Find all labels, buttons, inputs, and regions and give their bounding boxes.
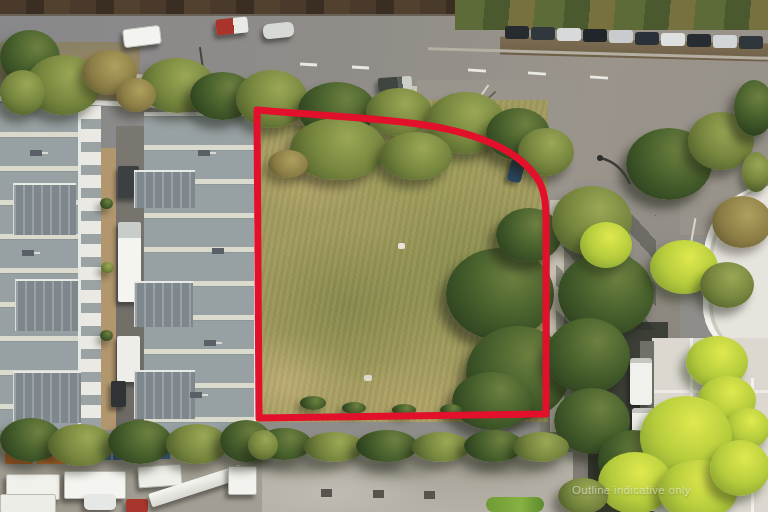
tree-canopy	[116, 78, 156, 112]
tree-canopy	[304, 432, 364, 462]
aerial-photo: Outline indicative only	[0, 0, 768, 512]
tree-canopy	[452, 372, 532, 430]
shrub	[742, 152, 768, 192]
tree-canopy	[0, 70, 45, 115]
tree-canopy	[366, 88, 432, 136]
tree-canopy	[546, 318, 630, 394]
tree-canopy	[236, 70, 308, 128]
shrub	[392, 404, 416, 416]
shrub	[342, 402, 366, 414]
tree-canopy	[248, 430, 278, 460]
tree-canopy	[108, 420, 172, 464]
tree-canopy	[166, 424, 228, 464]
tree-canopy	[356, 430, 418, 462]
tree-canopy	[268, 150, 308, 178]
watermark-label: Outline indicative only	[572, 484, 691, 496]
tree-canopy	[518, 128, 574, 176]
shrub	[440, 404, 462, 416]
tree-canopy	[412, 432, 470, 462]
shrub	[101, 262, 114, 273]
tree-canopy	[734, 80, 768, 136]
tree-canopy	[446, 248, 554, 340]
tree-canopy	[48, 424, 114, 466]
tree-canopy	[700, 262, 754, 308]
shrub	[100, 198, 113, 209]
tree-canopy	[712, 196, 768, 248]
tree-canopy	[710, 440, 768, 496]
shrub	[100, 330, 113, 341]
tree-canopy	[513, 432, 569, 462]
shrub	[300, 396, 326, 410]
tree-canopy	[580, 222, 632, 268]
tree-canopy	[380, 132, 452, 180]
tree-canopy-layer	[0, 0, 768, 512]
